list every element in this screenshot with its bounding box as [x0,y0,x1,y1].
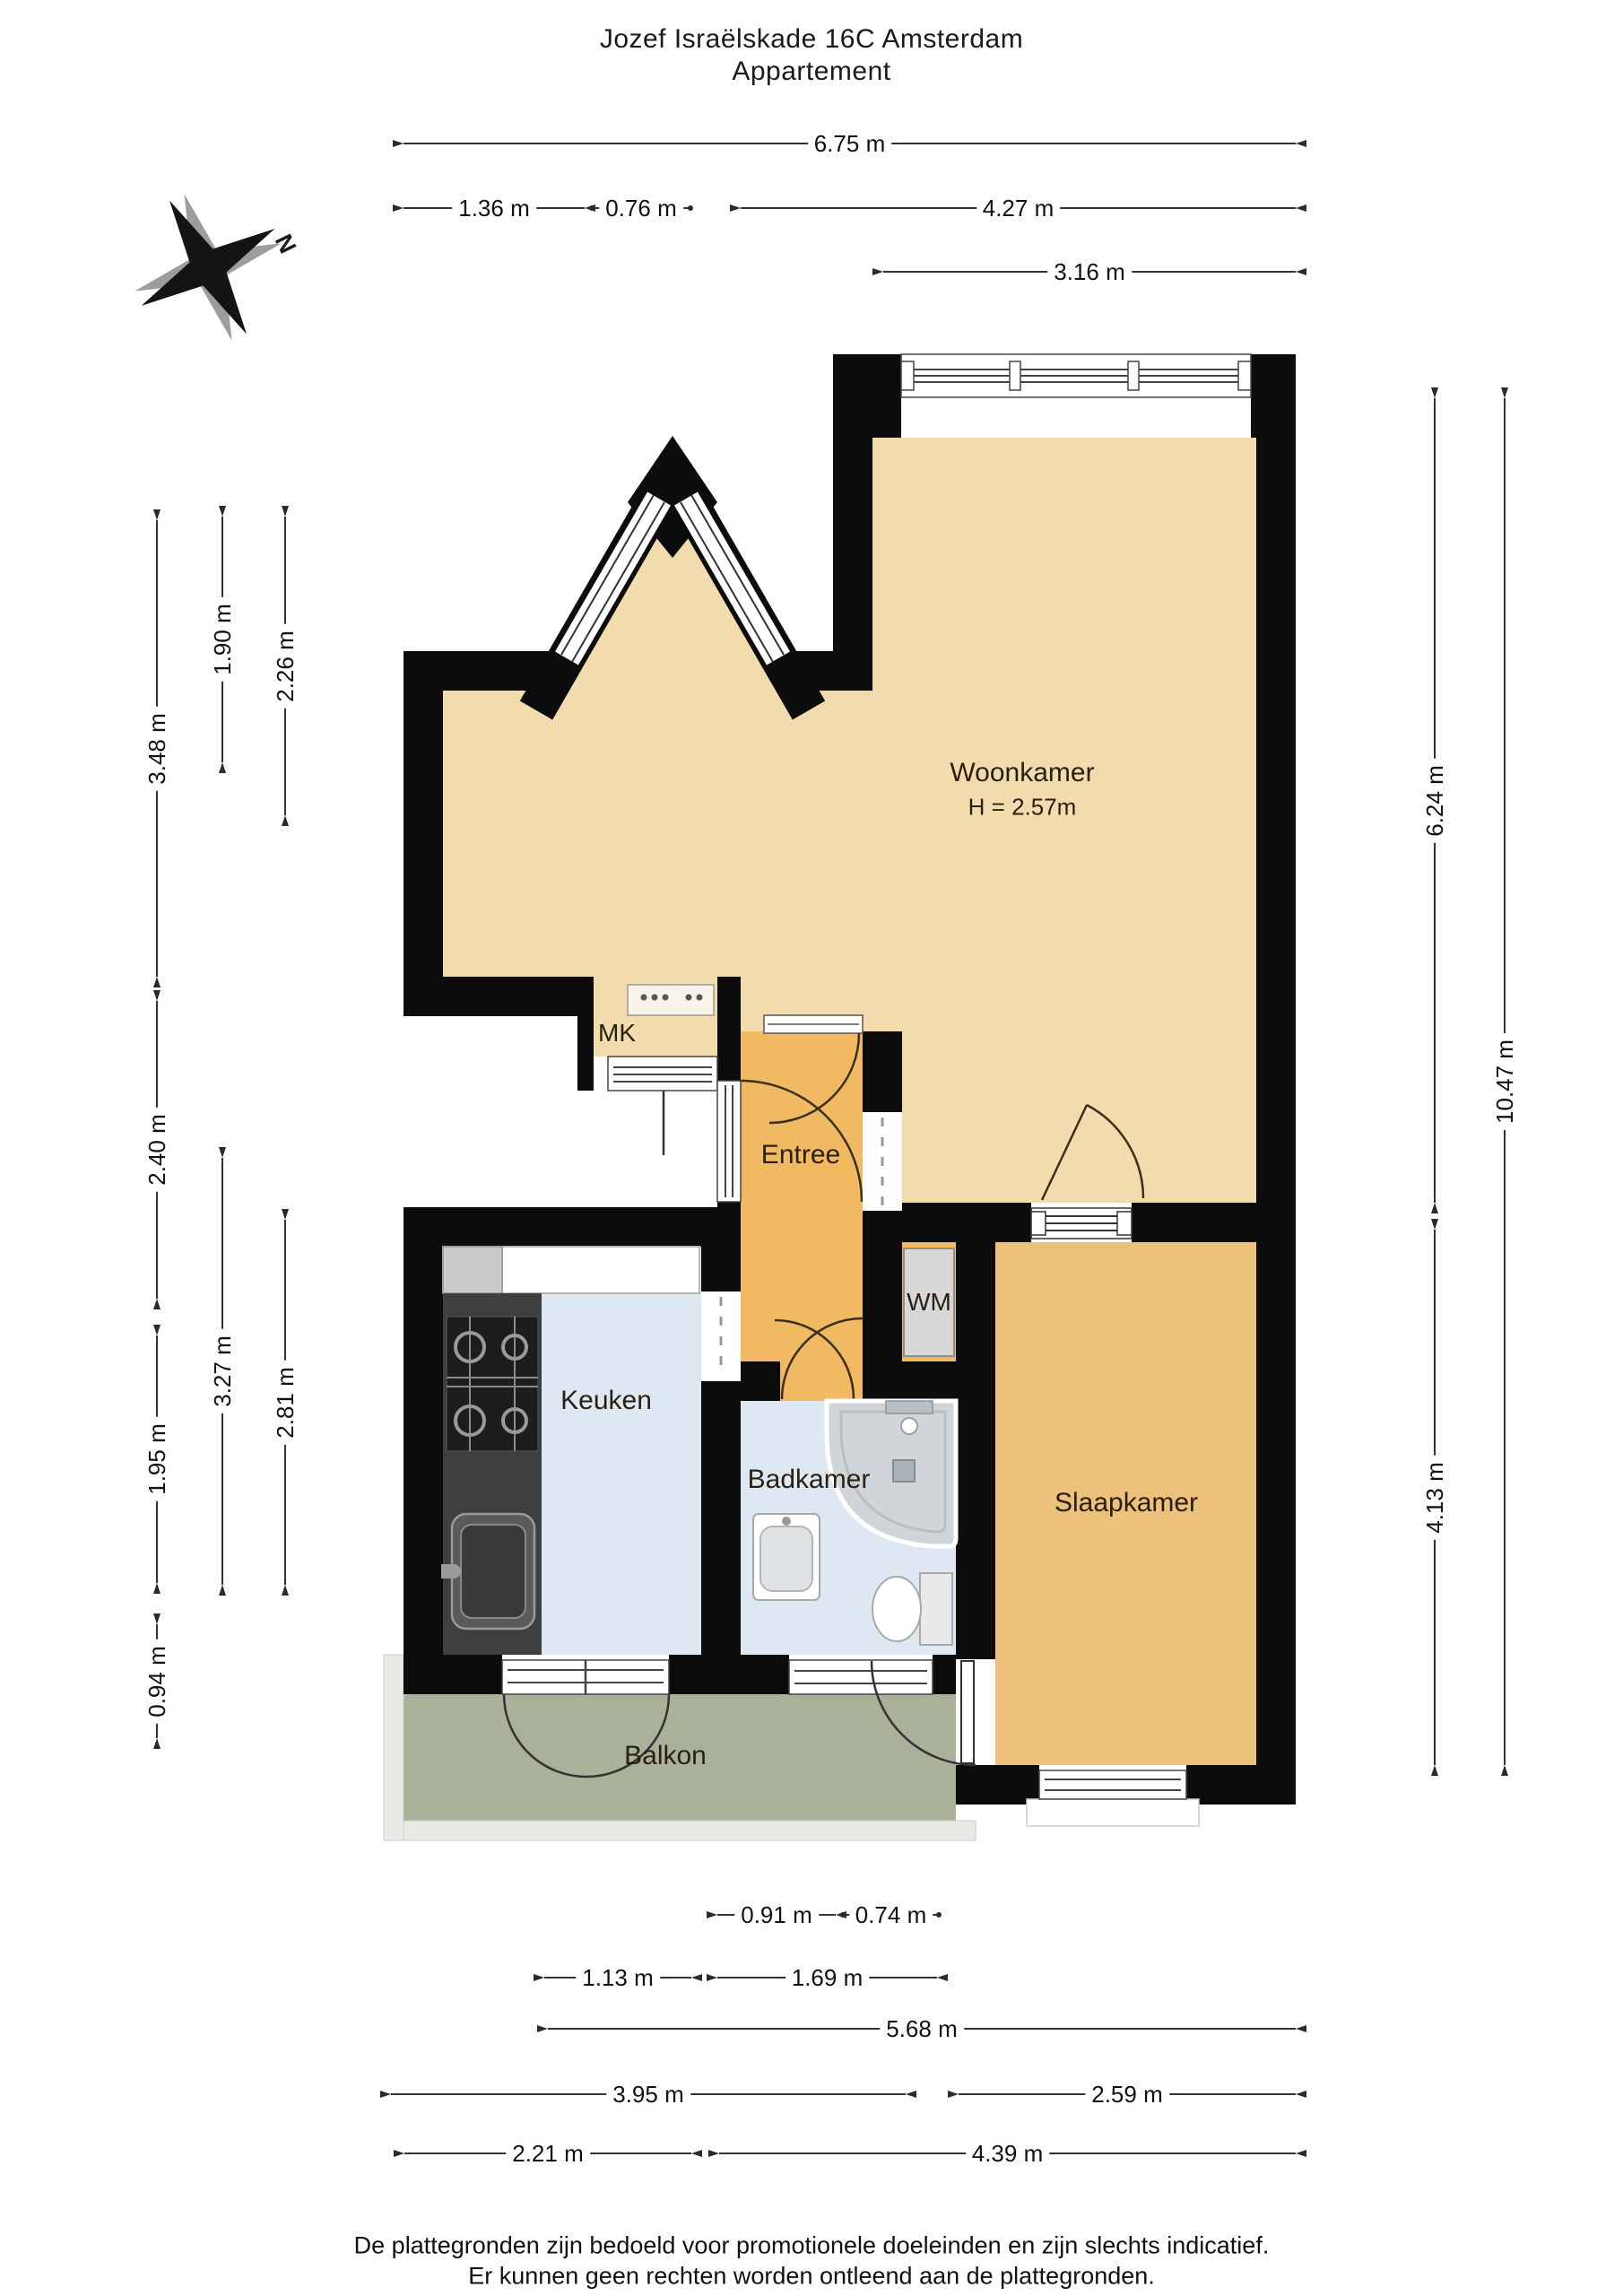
dimension-label: 2.81 m [272,1361,299,1445]
room-label-wm: WM [907,1288,951,1317]
window-mullion [1128,361,1139,390]
dimension-label: 2.26 m [272,624,299,709]
plan-subtitle: Appartement [732,57,890,87]
dimension-label: 0.94 m [143,1639,170,1724]
dimension-label: 1.13 m [576,1964,660,1991]
badkamer-window [789,1660,933,1694]
dimension-label: 3.48 m [143,707,170,791]
slaapkamer-window-sill [1027,1799,1199,1826]
dimension-label: 1.36 m [452,195,536,222]
kitchen-appliance [443,1247,502,1293]
window-endpost [901,361,914,390]
dimension-label: 6.75 m [808,130,892,157]
wall-keuken-right-lower [701,1381,741,1655]
wall-balkon-top-c [933,1655,956,1694]
wall-keuken-left [404,1207,443,1694]
meter-dot [697,995,703,1001]
dimension-label: 1.69 m [785,1964,870,1991]
washbasin-tap [782,1517,791,1526]
dimension-label: 5.68 m [880,2015,964,2042]
wall-slaapkamer-bottom-right [1186,1765,1296,1805]
dimension-label: 2.59 m [1085,2081,1169,2108]
dimension-label: 2.40 m [143,1108,170,1192]
room-label-badkamer: Badkamer [748,1465,871,1495]
room-label-woonkamer: Woonkamer [950,758,1094,788]
room-label-keuken: Keuken [560,1386,652,1416]
window-mullion [1010,361,1020,390]
room-label-balkon: Balkon [624,1741,707,1771]
wall-slaapkamer-left [956,1203,995,1659]
dimension-label: 10.47 m [1491,1033,1518,1130]
room-label-entree: Entree [761,1140,840,1170]
balkon-rim-bottom [384,1821,976,1840]
wall-top-left-pier [833,354,901,438]
dimension-label: 4.39 m [966,2140,1050,2167]
front-door [717,1081,741,1202]
dimension-label: 4.13 m [1421,1456,1448,1540]
wall-wing-bottom [404,977,594,1016]
ceiling-height-label: H = 2.57m [968,794,1077,822]
wall-keuken-top [404,1207,741,1247]
dimension-label: 0.91 m [734,1901,819,1928]
dimension-label: 3.27 m [209,1329,236,1413]
toilet-tank [920,1573,952,1645]
dimension-label: 2.21 m [506,2140,590,2167]
dimension-label: 3.16 m [1047,258,1132,285]
footer-disclaimer-line1: De plattegronden zijn bedoeld voor promo… [354,2232,1270,2260]
plan-title: Jozef Israëlskade 16C Amsterdam [600,24,1023,55]
washbasin-bowl [760,1526,812,1591]
dimension-label: 6.24 m [1421,759,1448,843]
wall-entree-right [863,1031,902,1401]
wall-balkon-top-b [669,1655,789,1694]
wall-right-outer [1256,398,1296,1805]
toilet-bowl [872,1577,921,1641]
wall-entree-left-upper [717,1031,741,1081]
wall-left-upper [404,651,443,1016]
meter-dot [686,995,692,1001]
room-label-slaapkamer: Slaapkamer [1055,1488,1198,1518]
dimension-label: 0.76 m [599,195,683,222]
kitchen-faucet-handle [441,1564,452,1578]
compass-rose [103,162,314,373]
wall-balkon-top-a [404,1655,502,1694]
shower-head [901,1418,917,1434]
compass-star [103,162,314,373]
wall-mk-left [577,977,594,1091]
floorplan-page: Jozef Israëlskade 16C Amsterdam Appartem… [0,0,1623,2296]
slaapkamer-door-endcap [1117,1212,1132,1235]
room-label-mk: MK [598,1019,636,1048]
slaapkamer-balkon-door-leaf [961,1661,974,1763]
slaapkamer-window [1039,1770,1186,1799]
wall-mk-right [717,977,741,1031]
shower-fixture [886,1401,933,1413]
wall-woonkamer-bottom-right [1132,1203,1296,1242]
slaapkamer-door-endcap [1031,1212,1046,1235]
footer-disclaimer-line2: Er kunnen geen rechten worden ontleend a… [468,2263,1155,2291]
meter-dot [652,995,658,1001]
balkon-rim-left [384,1655,404,1840]
wall-entree-bottom-stub [741,1361,780,1401]
shower-drain [893,1460,915,1482]
dimension-label: 0.74 m [849,1901,933,1928]
meter-dot [641,995,647,1001]
meter-dot [663,995,669,1001]
kitchen-sink-basin [461,1525,525,1618]
dimension-label: 1.95 m [143,1417,170,1501]
wall-keuken-right-upper [701,1207,741,1291]
dimension-label: 4.27 m [976,195,1061,222]
window-endpost [1238,361,1251,390]
dimension-label: 3.95 m [606,2081,690,2108]
dimension-label: 1.90 m [209,597,236,682]
